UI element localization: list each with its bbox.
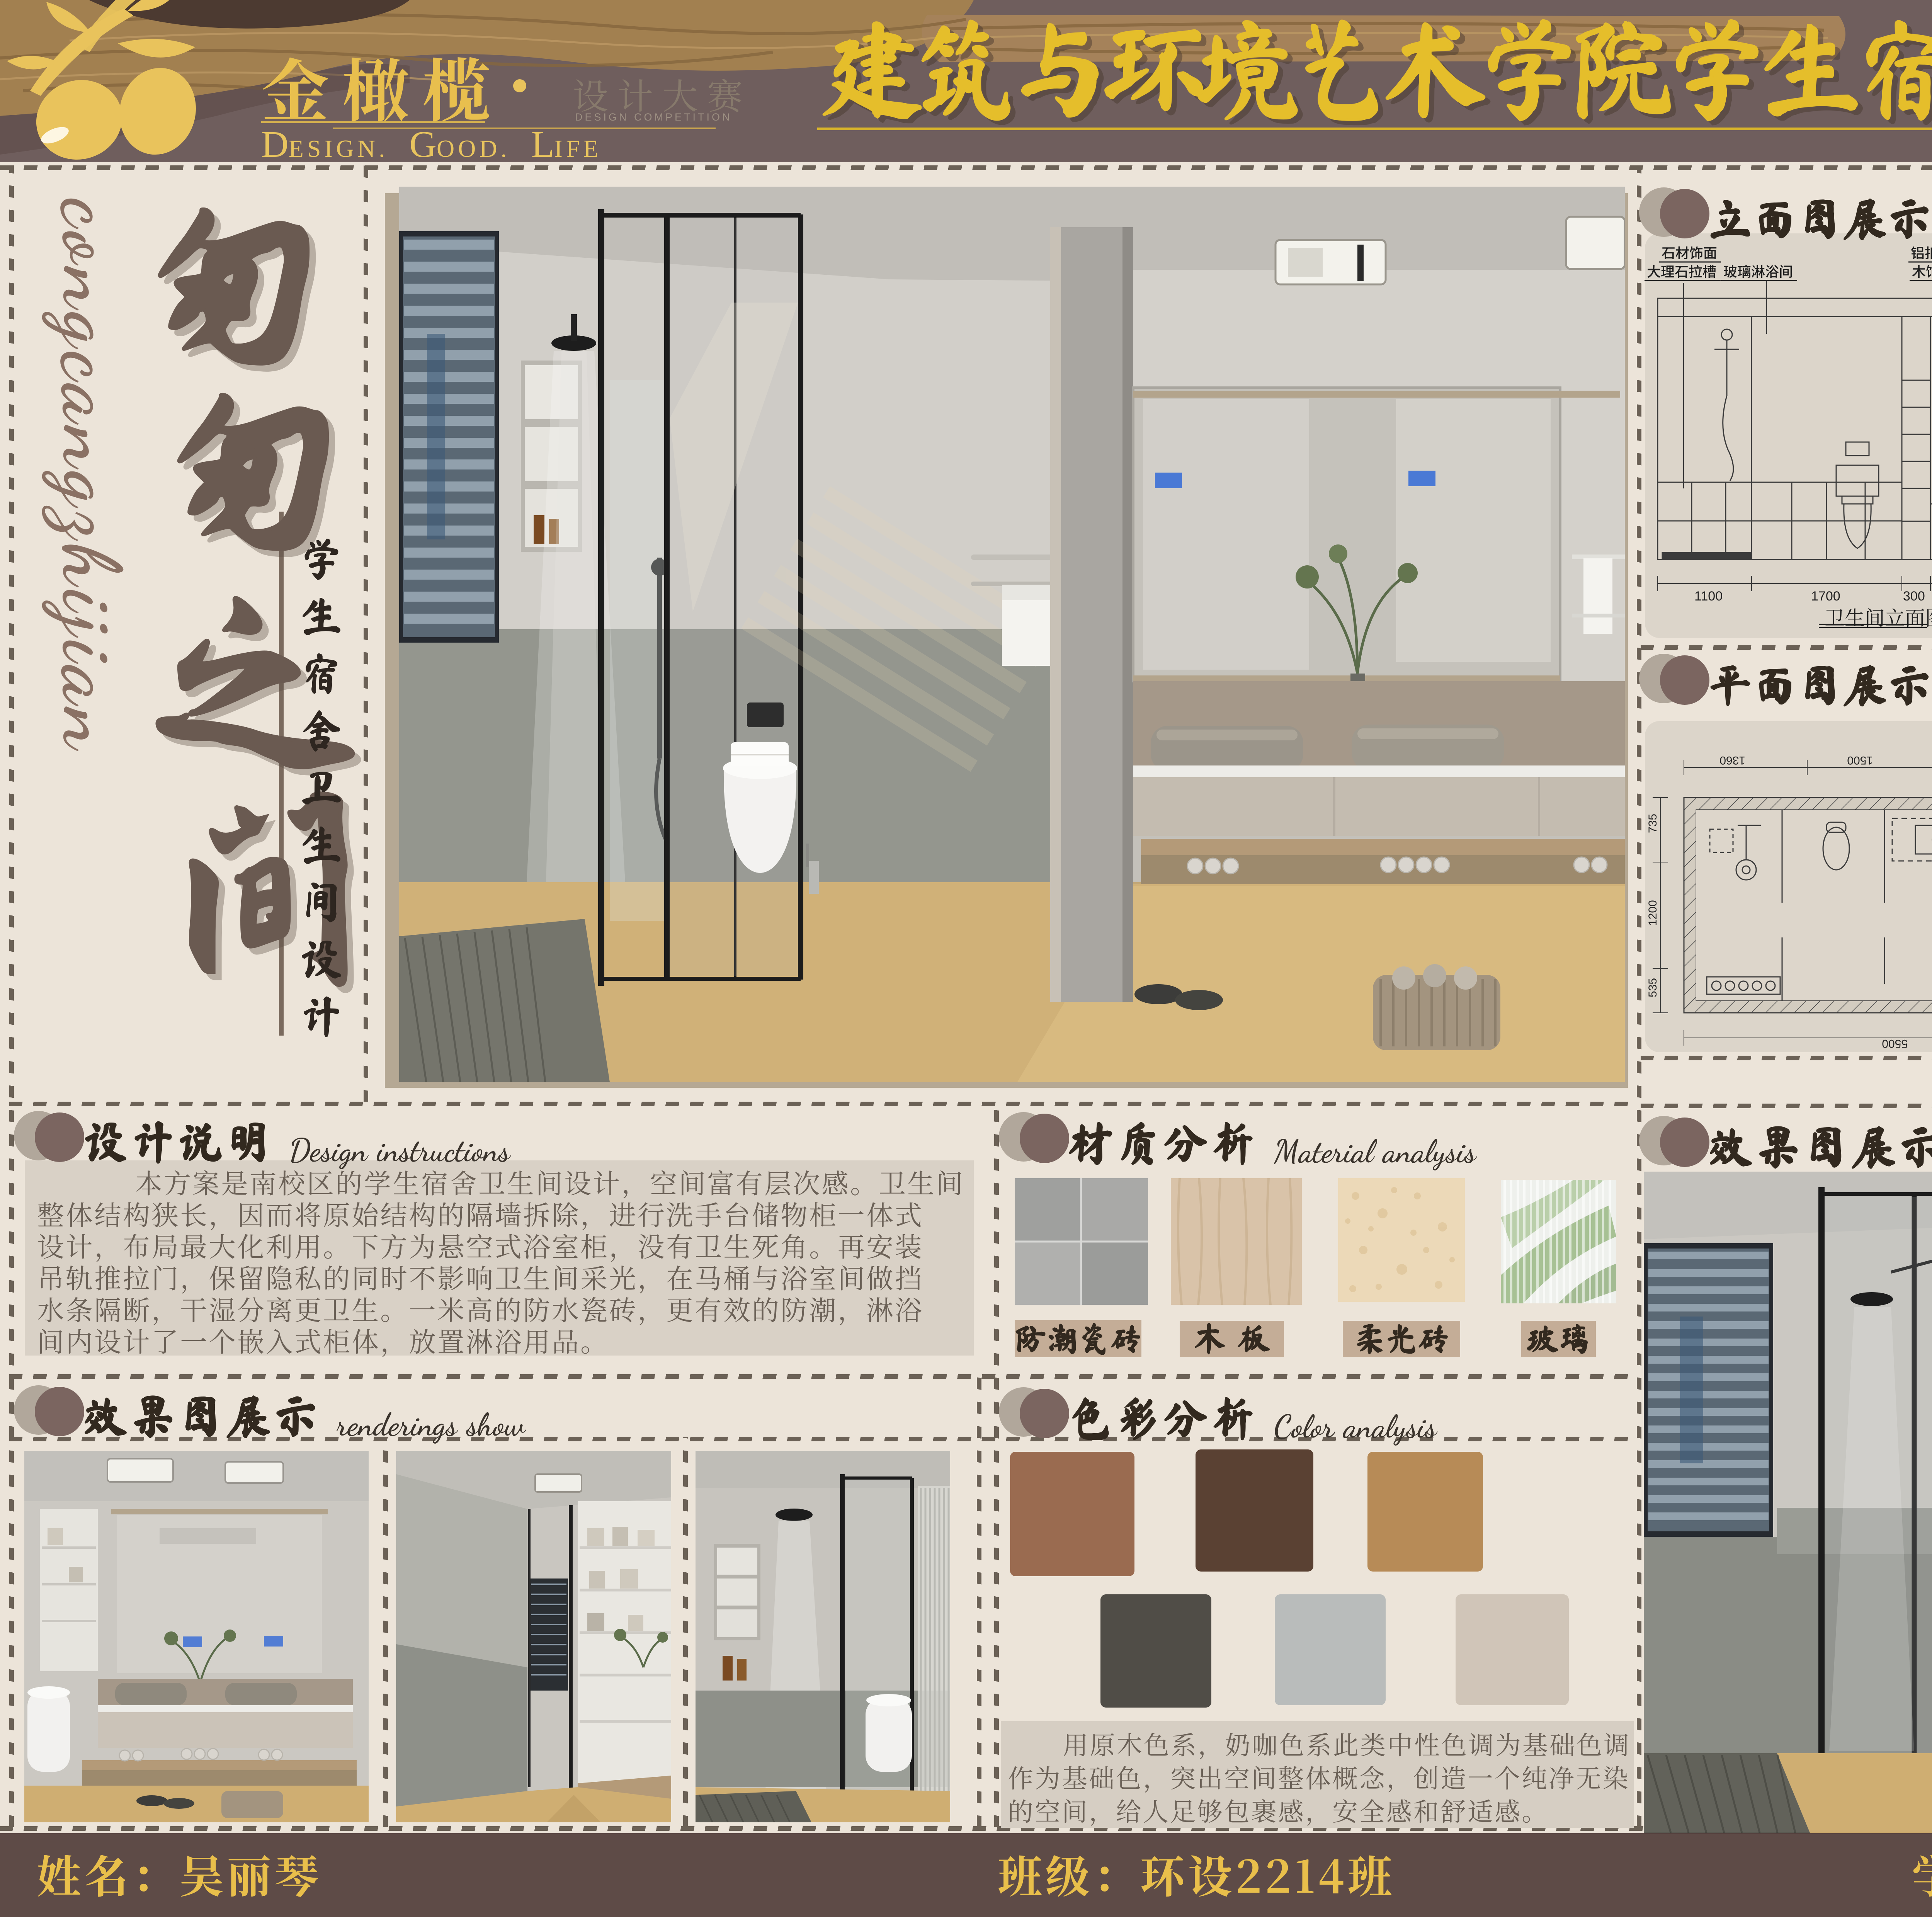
svg-text:300: 300: [1903, 589, 1925, 604]
svg-text:1200: 1200: [1646, 900, 1659, 926]
svg-text:5500: 5500: [1882, 1037, 1908, 1050]
svg-text:535: 535: [1646, 978, 1659, 997]
svg-text:1700: 1700: [1811, 589, 1840, 604]
svg-text:1500: 1500: [1847, 754, 1873, 767]
svg-text:1100: 1100: [1694, 589, 1723, 604]
svg-text:735: 735: [1646, 814, 1659, 833]
svg-text:1360: 1360: [1719, 754, 1745, 767]
